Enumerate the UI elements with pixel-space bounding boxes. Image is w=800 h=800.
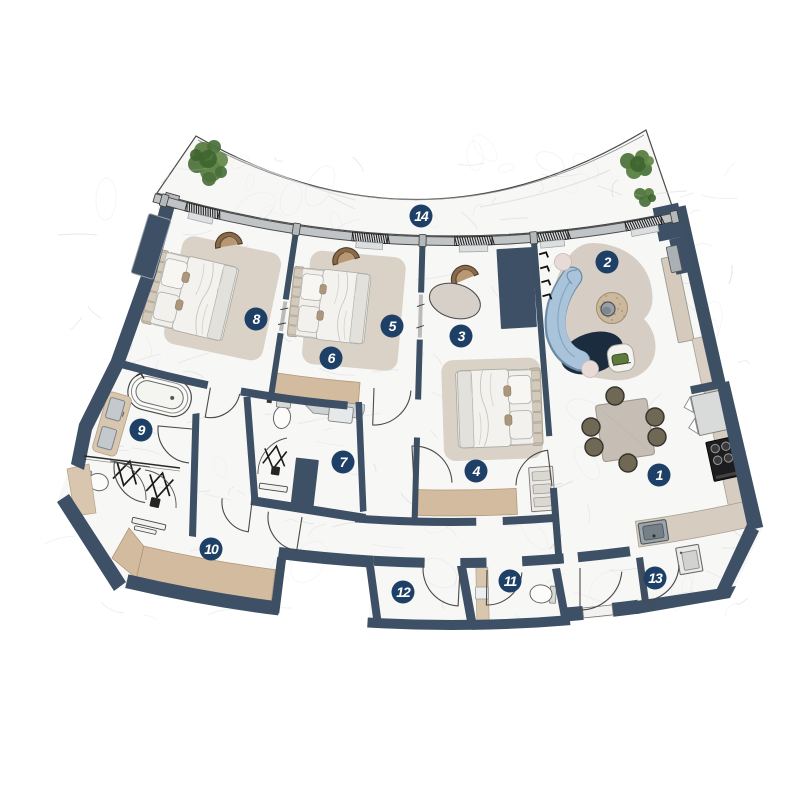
svg-text:11: 11	[504, 573, 518, 589]
svg-text:6: 6	[328, 350, 336, 366]
svg-text:4: 4	[472, 463, 481, 479]
svg-text:14: 14	[414, 208, 429, 224]
svg-text:13: 13	[648, 570, 663, 586]
svg-text:10: 10	[204, 541, 219, 557]
svg-text:2: 2	[603, 254, 612, 270]
svg-text:12: 12	[396, 584, 411, 600]
svg-text:3: 3	[458, 328, 466, 344]
svg-text:1: 1	[656, 467, 664, 483]
svg-text:8: 8	[253, 311, 261, 327]
svg-text:9: 9	[138, 422, 146, 438]
svg-text:5: 5	[389, 318, 397, 334]
